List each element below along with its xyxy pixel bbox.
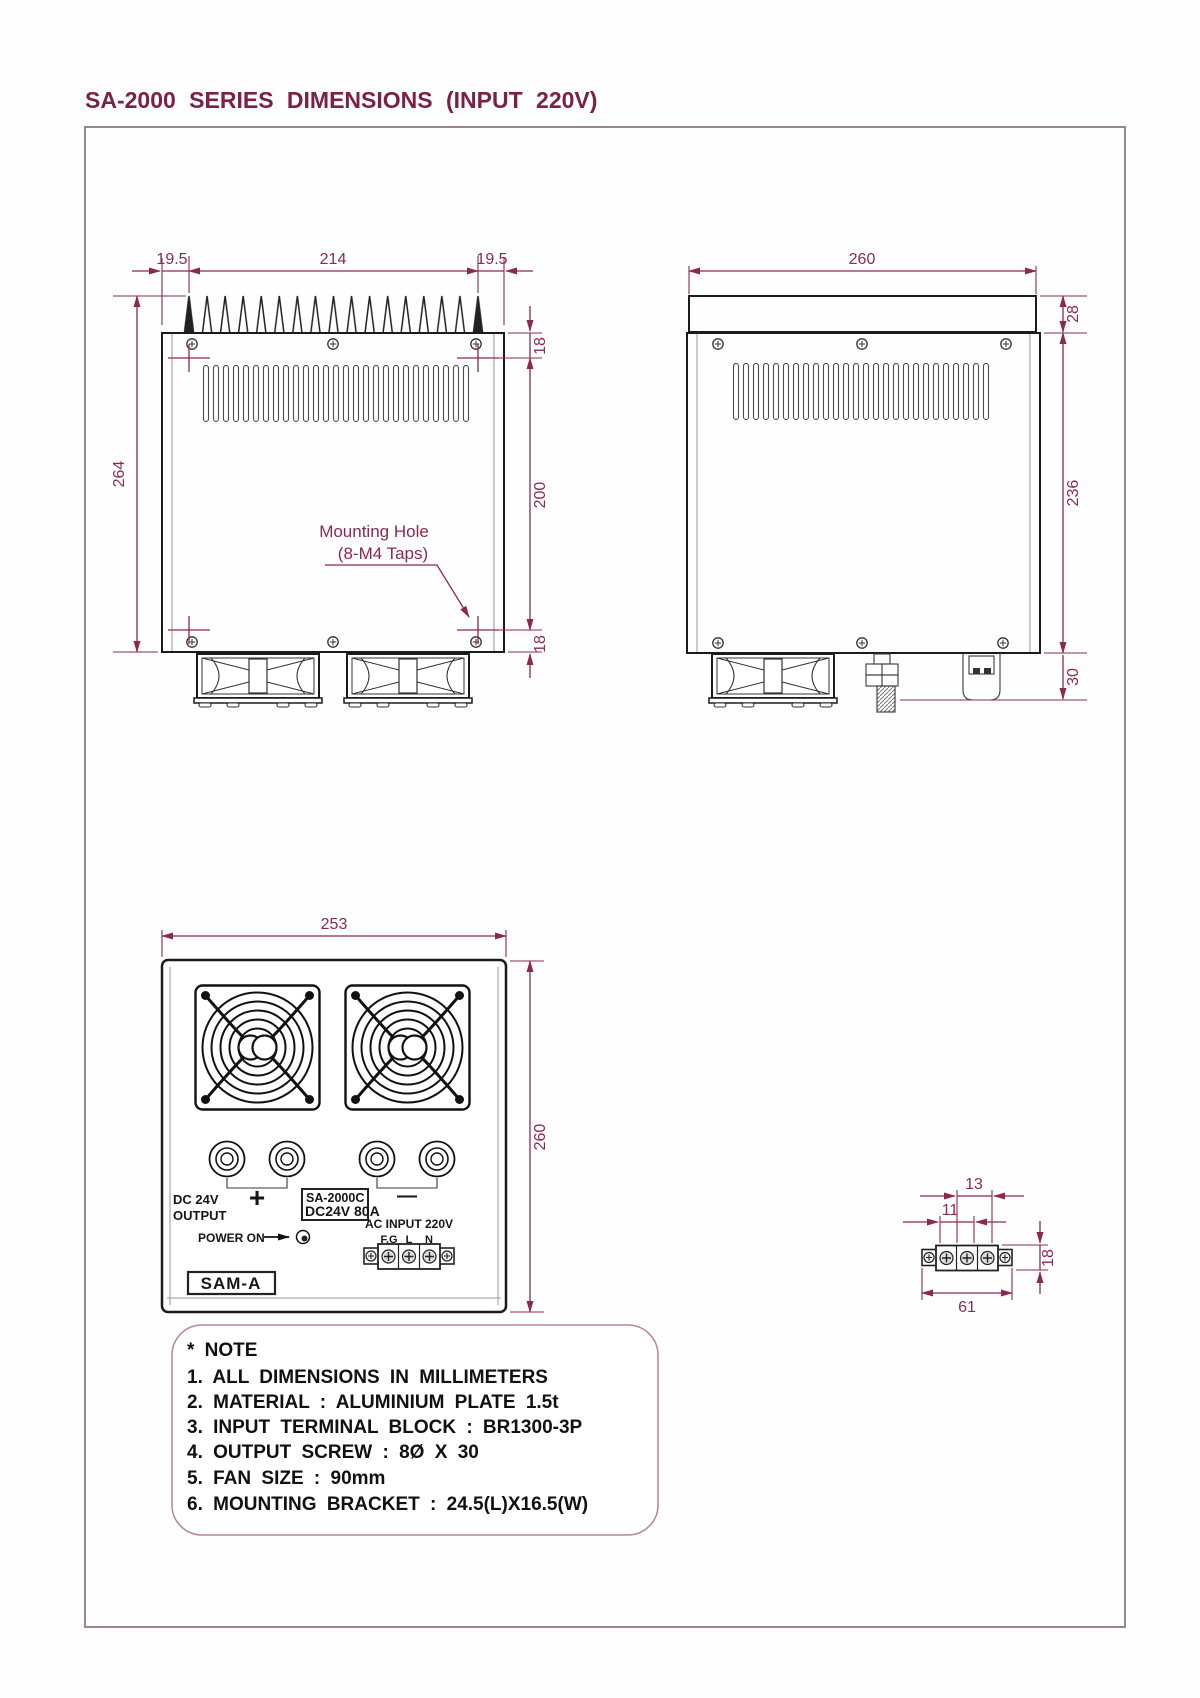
note-item: 6. MOUNTING BRACKET : 24.5(L)X16.5(W) — [187, 1494, 588, 1515]
note-item: 1. ALL DIMENSIONS IN MILLIMETERS — [187, 1367, 548, 1388]
top-view — [162, 295, 504, 707]
heatsink-fins — [181, 295, 488, 333]
fan-side-view — [344, 654, 472, 707]
note-header: * NOTE — [187, 1340, 257, 1361]
brand-label: SAM-A — [201, 1274, 262, 1293]
note-item: 2. MATERIAL : ALUMINIUM PLATE 1.5t — [187, 1392, 559, 1413]
front-view: + — DC 24V OUTPUT SA-2000C DC24V 80A POW… — [162, 960, 506, 1312]
page-title: SA-2000 SERIES DIMENSIONS (INPUT 220V) — [85, 87, 597, 113]
dim-fan-height: 30 — [1065, 668, 1082, 686]
power-on-label: POWER ON — [198, 1231, 265, 1245]
vent-slots — [731, 363, 991, 420]
dim-height: 260 — [532, 1124, 549, 1151]
fan-grille-right — [346, 986, 470, 1110]
note-item: 3. INPUT TERMINAL BLOCK : BR1300-3P — [187, 1417, 583, 1438]
dim-width: 253 — [321, 916, 348, 933]
dim-depth: 264 — [111, 461, 128, 488]
dim-body-height: 236 — [1065, 480, 1082, 507]
output-post-plus — [270, 1142, 305, 1177]
mounting-hole-mark — [168, 616, 210, 644]
dim-heatsink-height: 28 — [1065, 305, 1082, 323]
dimension-drawing: SA-2000 SERIES DIMENSIONS (INPUT 220V) 1… — [0, 0, 1200, 1698]
fan-side-view — [709, 654, 837, 707]
dim-hole-inset-top: 18 — [532, 337, 549, 355]
input-terminal-block — [364, 1244, 454, 1269]
dim-block-height: 18 — [1040, 1249, 1057, 1267]
side-view-dimensions: 260 28 236 30 — [689, 251, 1087, 700]
dim-fin-span: 214 — [320, 251, 347, 268]
side-view — [687, 296, 1040, 712]
terminal-block-detail: 13 11 18 61 — [903, 1176, 1057, 1316]
output-post-minus — [420, 1142, 455, 1177]
ac-input-label: AC INPUT 220V — [365, 1217, 453, 1231]
mounting-hole-mark — [457, 616, 499, 644]
mounting-hole-callout-line1: Mounting Hole — [319, 522, 429, 541]
note-item: 5. FAN SIZE : 90mm — [187, 1468, 385, 1489]
fan-grille-left — [196, 986, 320, 1110]
output-screw-bolt — [866, 654, 898, 712]
plus-symbol: + — [249, 1182, 265, 1213]
dim-pitch-outer: 13 — [965, 1176, 983, 1193]
output-post-minus — [360, 1142, 395, 1177]
vent-slots — [201, 365, 471, 422]
note-item: 4. OUTPUT SCREW : 8Ø X 30 — [187, 1442, 479, 1463]
dim-hole-span: 200 — [532, 482, 549, 509]
dc-output-label-line1: DC 24V — [173, 1192, 219, 1207]
dim-width: 260 — [849, 251, 876, 268]
dim-hole-inset-bottom: 18 — [532, 635, 549, 653]
output-post-plus — [210, 1142, 245, 1177]
datasheet-page: SA-2000 SERIES DIMENSIONS (INPUT 220V) 1… — [0, 0, 1200, 1698]
ac-inlet-connector — [963, 653, 1000, 700]
heatsink-profile — [689, 296, 1036, 332]
note-box: * NOTE 1. ALL DIMENSIONS IN MILLIMETERS … — [172, 1325, 658, 1535]
terminal-block — [922, 1246, 1012, 1271]
dim-block-length: 61 — [958, 1299, 976, 1316]
minus-symbol: — — [397, 1185, 417, 1207]
dim-right-offset: 19.5 — [476, 251, 507, 268]
dim-left-offset: 19.5 — [156, 251, 187, 268]
dc-output-label-line2: OUTPUT — [173, 1208, 227, 1223]
fan-side-view — [194, 654, 322, 707]
callout-leader — [325, 565, 469, 617]
dim-pitch-inner: 11 — [942, 1202, 959, 1219]
mounting-hole-callout-line2: (8-M4 Taps) — [338, 544, 428, 563]
